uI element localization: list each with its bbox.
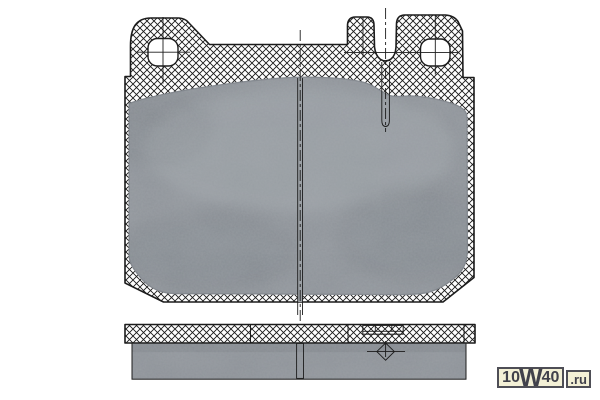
front-view bbox=[103, 8, 505, 344]
backing-plate-strip bbox=[125, 325, 475, 344]
watermark-prefix: 10 bbox=[502, 369, 520, 387]
brake-pad-product-image: 10W40 .ru bbox=[0, 0, 600, 400]
bottom-view bbox=[125, 325, 475, 383]
friction-material bbox=[103, 70, 505, 304]
brake-pad-technical-drawing bbox=[0, 0, 600, 400]
watermark-main-box: 10W40 bbox=[497, 367, 564, 388]
watermark-suffix: 40 bbox=[542, 369, 560, 387]
friction-texture bbox=[103, 70, 505, 304]
watermark-letter-w: W bbox=[519, 371, 543, 385]
friction-strip bbox=[125, 340, 473, 382]
watermark-10w40: 10W40 .ru bbox=[497, 367, 591, 388]
watermark-domain-box: .ru bbox=[566, 370, 591, 388]
